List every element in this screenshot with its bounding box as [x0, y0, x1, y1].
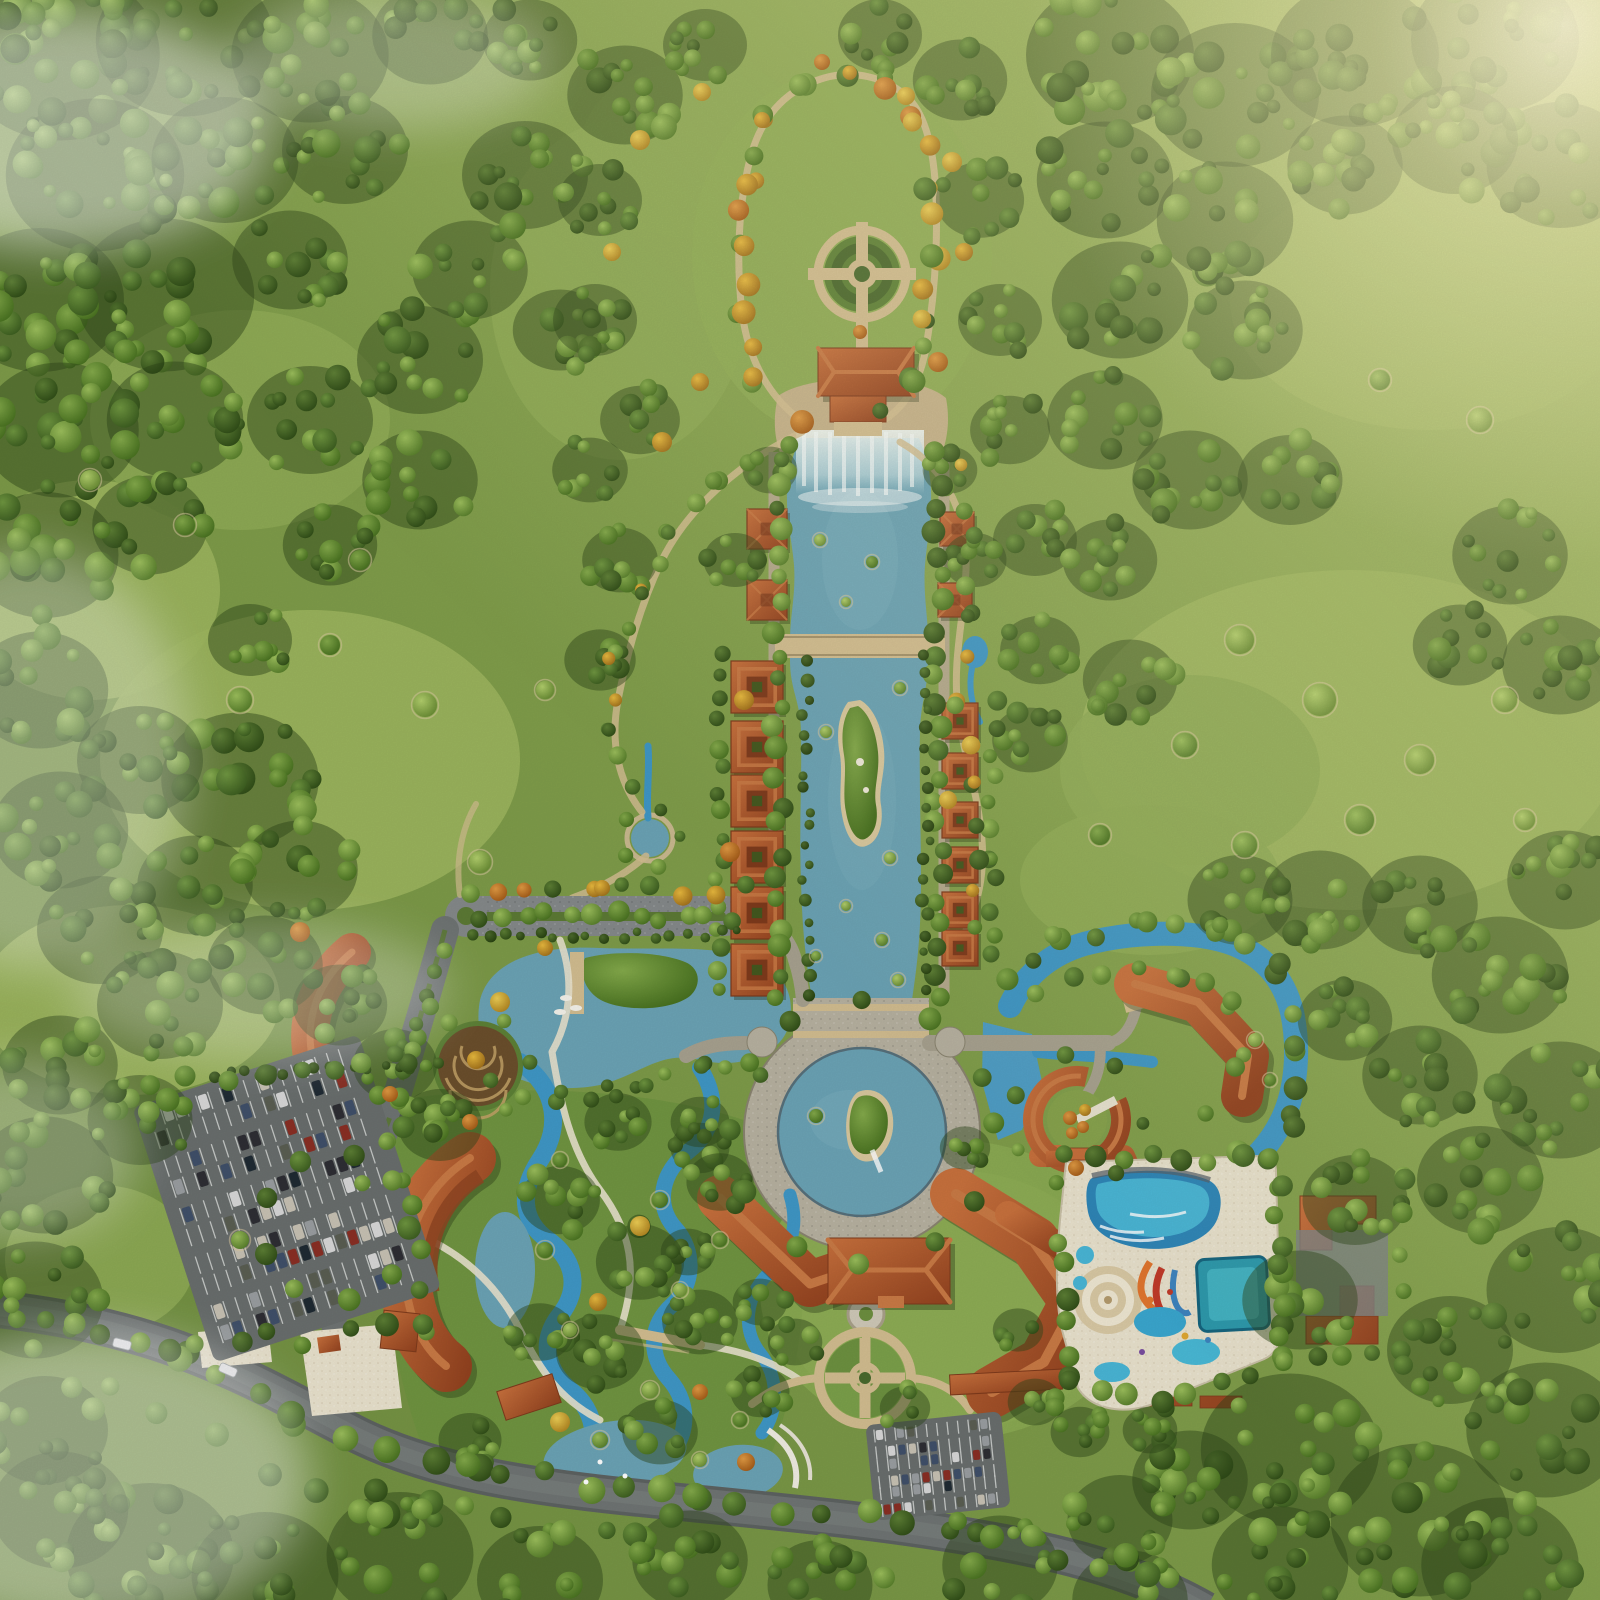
aerial-masterplan-rendering	[0, 0, 1600, 1600]
render-grain	[0, 0, 1600, 1600]
atmosphere	[0, 0, 1600, 1600]
site-plan-svg	[0, 0, 1600, 1600]
